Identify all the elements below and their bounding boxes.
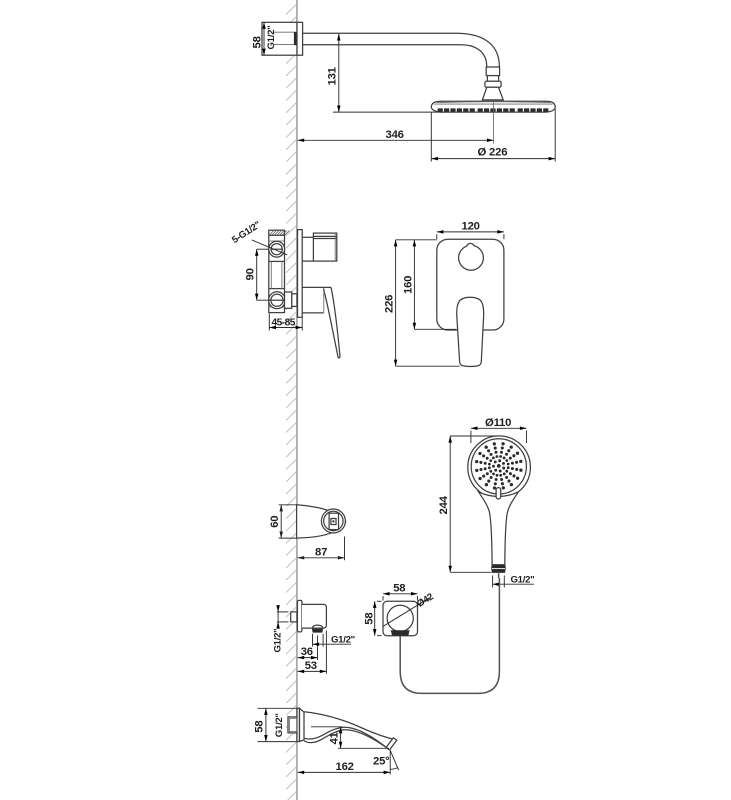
svg-text:Ø 226: Ø 226: [478, 147, 508, 159]
svg-text:162: 162: [336, 761, 354, 773]
svg-text:45-85: 45-85: [272, 318, 296, 329]
svg-text:60: 60: [269, 516, 281, 528]
svg-text:G1/2": G1/2": [511, 574, 535, 585]
svg-text:87: 87: [315, 546, 327, 558]
svg-text:Ø110: Ø110: [485, 417, 511, 429]
svg-text:41: 41: [329, 732, 341, 744]
svg-text:131: 131: [326, 67, 338, 85]
svg-text:226: 226: [383, 295, 395, 313]
svg-text:58: 58: [254, 721, 266, 733]
svg-text:G1/2": G1/2": [272, 629, 283, 653]
svg-text:G1/2": G1/2": [331, 634, 355, 645]
svg-text:Ø42: Ø42: [415, 591, 435, 609]
svg-text:58: 58: [393, 582, 405, 594]
svg-text:58: 58: [363, 613, 375, 625]
svg-text:53: 53: [305, 660, 317, 672]
svg-text:346: 346: [386, 129, 404, 141]
svg-text:36: 36: [301, 646, 313, 658]
svg-text:244: 244: [438, 495, 450, 514]
svg-text:G1/2": G1/2": [266, 26, 277, 50]
svg-text:58: 58: [252, 36, 264, 48]
svg-text:G1/2": G1/2": [274, 713, 285, 737]
svg-text:90: 90: [244, 268, 256, 280]
svg-text:160: 160: [402, 276, 414, 294]
svg-text:25°: 25°: [373, 756, 390, 768]
svg-text:120: 120: [462, 221, 480, 233]
